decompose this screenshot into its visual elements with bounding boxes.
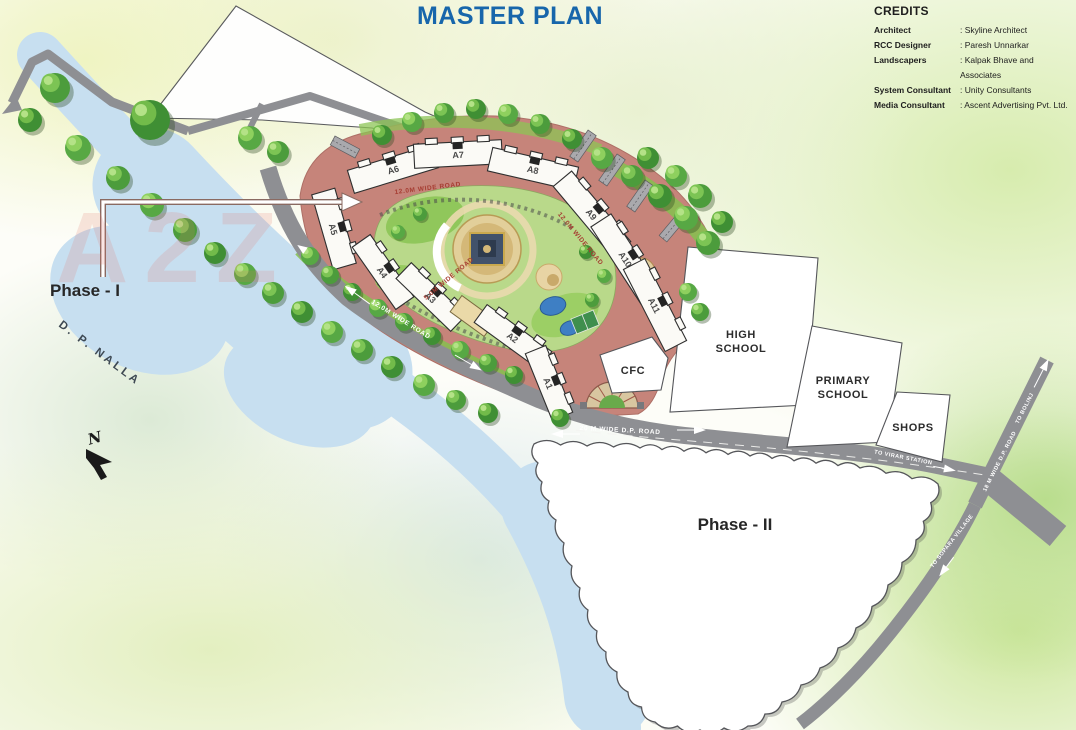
cfc-label: CFC: [621, 365, 645, 377]
page-title: MASTER PLAN: [390, 2, 630, 31]
phase2-label: Phase - II: [698, 515, 773, 534]
credits-panel: CREDITS Architect: Skyline Architect RCC…: [874, 4, 1074, 113]
primary-school-label-2: SCHOOL: [818, 389, 869, 401]
credit-row-landscapers: Landscapers: Kalpak Bhave and Associates: [874, 53, 1074, 83]
shops-label: SHOPS: [892, 422, 934, 434]
credits-heading: CREDITS: [874, 4, 1074, 18]
credit-row-system-consultant: System Consultant: Unity Consultants: [874, 83, 1074, 98]
building-label: A7: [452, 150, 464, 161]
credit-row-architect: Architect: Skyline Architect: [874, 23, 1074, 38]
credit-row-media-consultant: Media Consultant: Ascent Advertising Pvt…: [874, 98, 1074, 113]
north-arrow: N: [85, 427, 112, 480]
credit-row-rcc-designer: RCC Designer: Paresh Unnarkar: [874, 38, 1074, 53]
road-label-sopara: TO SOPARA VILLAGE: [930, 514, 975, 570]
high-school-label-2: SCHOOL: [716, 343, 767, 355]
master-plan-page: A6 A7 A8 A9 A10 A11 A5 A4 A3 A2 A1: [0, 0, 1076, 730]
play-area: [536, 264, 562, 290]
watermark: A2Z: [56, 192, 293, 304]
primary-school-label-1: PRIMARY: [816, 375, 871, 387]
north-label: N: [85, 427, 105, 449]
high-school-label-1: HIGH: [726, 329, 756, 341]
